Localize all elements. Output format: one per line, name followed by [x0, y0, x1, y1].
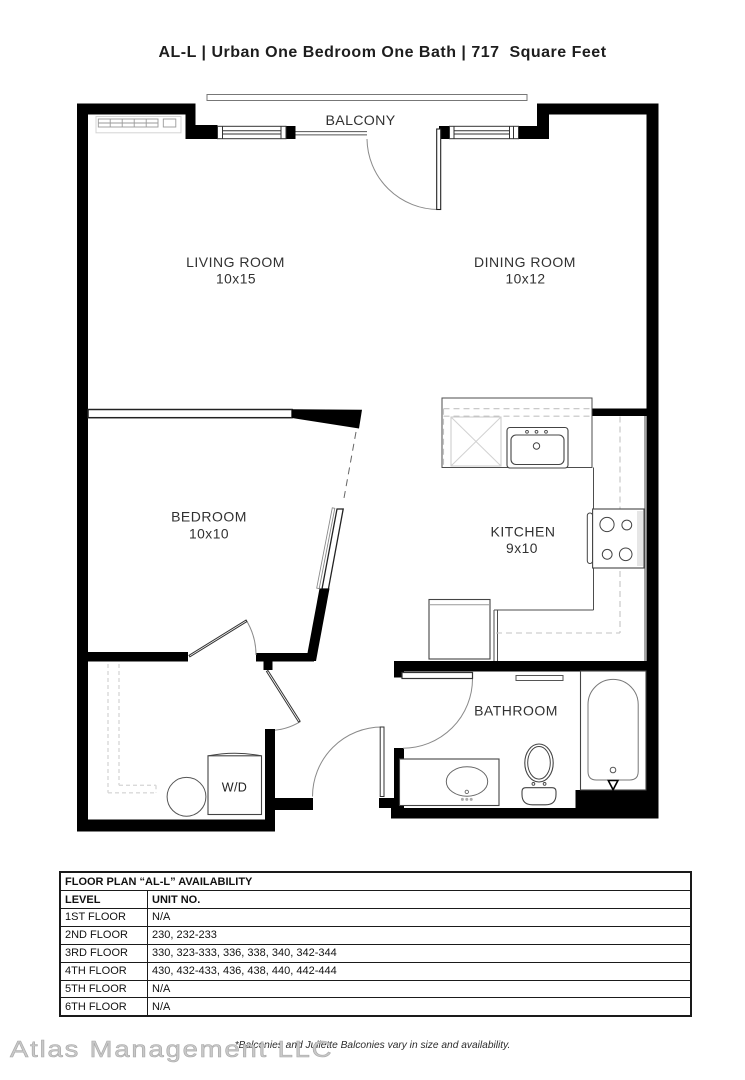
svg-text:10x15: 10x15	[216, 272, 256, 287]
svg-text:10x10: 10x10	[189, 527, 229, 542]
svg-text:LIVING ROOM: LIVING ROOM	[186, 254, 285, 270]
svg-text:W/D: W/D	[222, 781, 247, 795]
svg-text:DINING ROOM: DINING ROOM	[474, 254, 576, 270]
svg-text:BEDROOM: BEDROOM	[171, 509, 247, 525]
svg-text:10x12: 10x12	[505, 272, 545, 287]
svg-text:BALCONY: BALCONY	[326, 113, 396, 129]
svg-text:BATHROOM: BATHROOM	[474, 703, 558, 719]
svg-text:KITCHEN: KITCHEN	[491, 524, 556, 540]
svg-text:9x10: 9x10	[506, 541, 538, 556]
